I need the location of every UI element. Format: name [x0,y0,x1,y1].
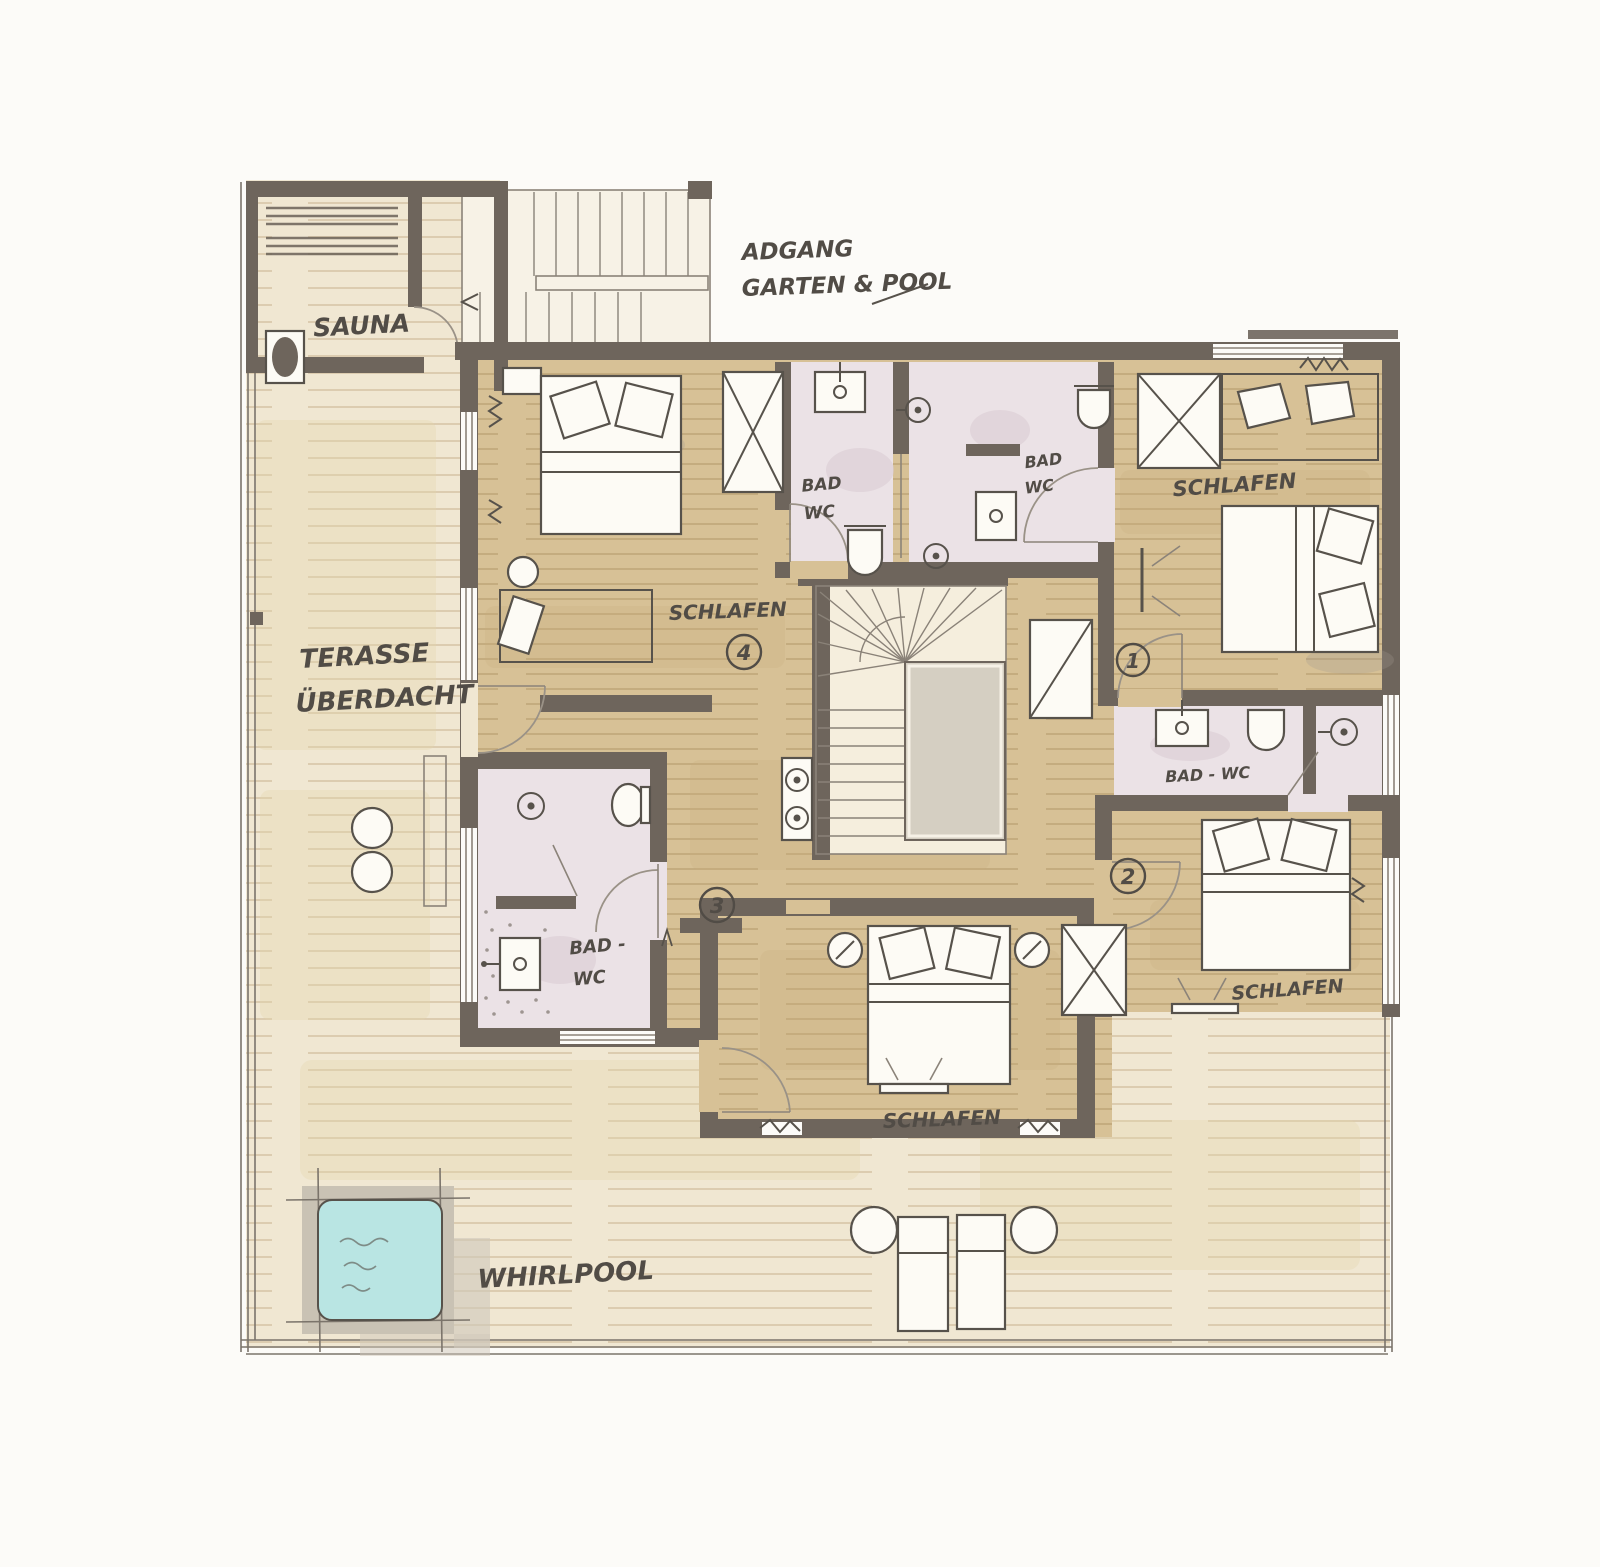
toilet [1078,390,1110,428]
sink [976,492,1016,540]
pillow [946,928,1000,979]
nightstand [503,368,541,394]
toilet [848,530,882,575]
bed-bedroom4 [541,376,685,534]
window-right-2 [1383,858,1399,1004]
svg-text:1: 1 [1126,649,1140,673]
pillow [1319,583,1374,637]
terrace-table [352,808,392,848]
floor-plan: SAUNA ADGANG GARTEN & POOL [0,0,1600,1567]
whirlpool-basin [318,1200,442,1320]
room-label-bath3-line2: WC [572,967,608,991]
svg-text:3: 3 [710,894,725,918]
cabinet-hall [1030,620,1092,718]
stair-core [905,662,1005,840]
toilet [612,784,650,826]
window-right-1 [1383,695,1399,795]
access-note: ADGANG GARTEN & POOL [739,236,952,304]
window-left-2 [461,588,477,680]
toilet [1248,710,1284,750]
window-left-1 [461,412,477,470]
lounger [957,1215,1005,1329]
pillow [1306,382,1354,424]
room-label-sauna: SAUNA [312,308,410,342]
bed-bedroom3 [868,926,1010,1084]
room-label-bedroom4: SCHLAFEN [668,597,787,625]
nightstand-round [1015,933,1049,967]
access-label-line2: GARTEN & POOL [741,269,952,302]
wardrobe-bedroom1 [1138,374,1220,468]
svg-text:2: 2 [1121,865,1136,889]
room-label-bath2-line2: WC [1024,475,1056,497]
lounger [898,1217,948,1331]
wardrobe-bedroom4 [723,372,783,492]
bed-bedroom1 [1222,506,1394,674]
room-label-bedroom3: SCHLAFEN [882,1105,1001,1133]
room-label-bath1-line2: WC [803,502,836,525]
chair [508,557,538,587]
window-bottom-left [560,1031,655,1044]
room-label-bath1-line1: BAD [801,473,843,496]
wardrobe-bedroom2 [1062,925,1126,1015]
bed-bedroom2 [1202,818,1350,970]
side-table [851,1207,897,1253]
access-label-line1: ADGANG [739,236,854,266]
svg-text:4: 4 [736,641,752,665]
hob [782,758,812,840]
terrace-table [352,852,392,892]
window-top-right [1213,344,1343,358]
side-table [1011,1207,1057,1253]
nightstand-round [828,933,862,967]
floor-plan-canvas: SAUNA ADGANG GARTEN & POOL [0,0,1600,1567]
window-left-3 [461,828,477,1002]
